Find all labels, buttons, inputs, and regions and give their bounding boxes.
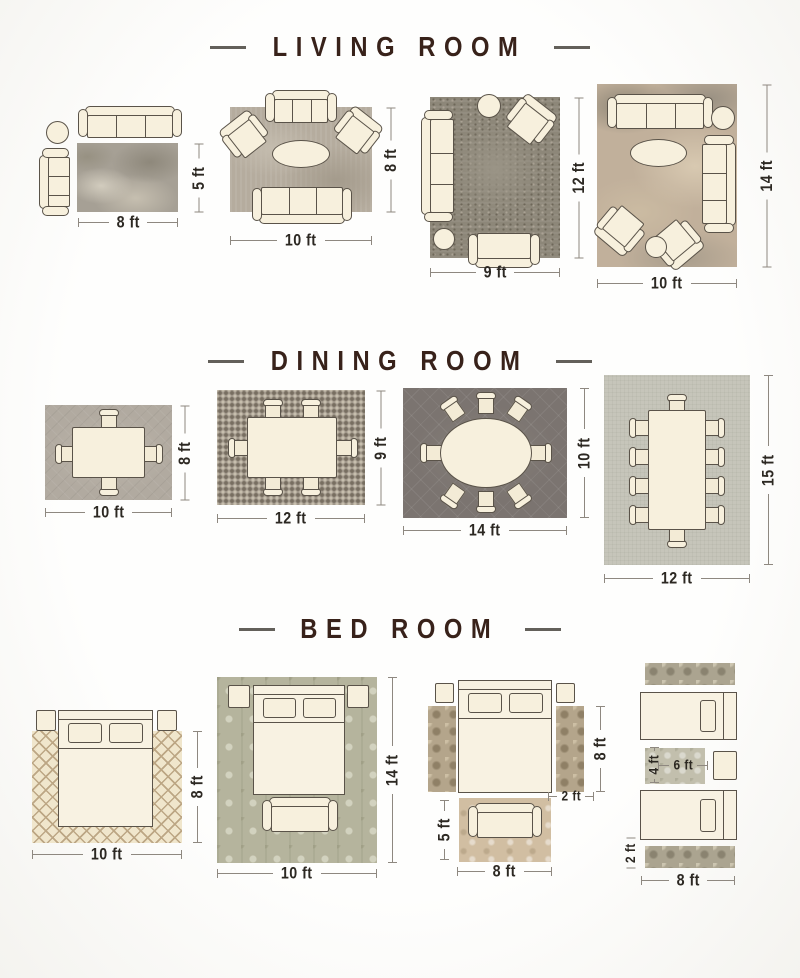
dining-chair — [530, 443, 552, 463]
runner-rug-left — [428, 706, 456, 792]
dim-runner-height: 2 ft — [623, 842, 639, 869]
title-dash-left — [208, 360, 244, 363]
dim-label: 2 ft — [623, 839, 638, 866]
dim-height: 10 ft — [575, 388, 593, 518]
sofa-vertical — [421, 110, 455, 222]
dim-height: 9 ft — [372, 391, 390, 506]
runner-rug-right — [556, 706, 584, 792]
dim-width: 9 ft — [430, 263, 560, 281]
nightstand — [435, 683, 454, 703]
dining-chair — [476, 491, 496, 513]
round-side-table — [711, 106, 735, 130]
title-dash-right — [525, 628, 561, 631]
runner-rug-top — [645, 663, 735, 685]
king-bed — [253, 685, 345, 795]
dining-chair — [703, 418, 725, 438]
queen-bed — [458, 680, 552, 793]
dim-label: 8 ft — [175, 435, 194, 472]
dim-height: 12 ft — [570, 98, 588, 259]
dim-label: 9 ft — [477, 263, 514, 282]
dim-runner-height: 8 ft — [591, 706, 609, 792]
dim-label: 10 ft — [645, 274, 690, 293]
dining-chair — [476, 392, 496, 414]
section-title: DINING ROOM — [271, 345, 529, 377]
dim-label: 5 ft — [189, 160, 208, 197]
title-dash-right — [556, 360, 592, 363]
twin-bed — [640, 692, 737, 740]
dim-width: 10 ft — [32, 845, 182, 863]
dim-height: 14 ft — [383, 677, 401, 863]
dim-height: 8 ft — [188, 731, 206, 843]
dim-label: 8 ft — [670, 871, 707, 890]
dim-rug-width: 6 ft — [658, 757, 708, 773]
runner-rug-bottom — [645, 846, 735, 868]
dim-width: 10 ft — [45, 503, 172, 521]
nightstand — [228, 685, 250, 708]
nightstand — [36, 710, 56, 731]
dim-width: 10 ft — [217, 864, 377, 882]
section-title: LIVING ROOM — [273, 31, 527, 63]
nightstand — [347, 685, 369, 708]
dim-width: 14 ft — [403, 521, 567, 539]
dim-label: 12 ft — [655, 569, 700, 588]
dim-height: 8 ft — [176, 406, 194, 501]
dim-rug-width: 8 ft — [457, 862, 552, 880]
dim-label: 8 ft — [381, 142, 400, 179]
dim-width: 12 ft — [217, 509, 365, 527]
dim-runner-width: 2 ft — [548, 788, 594, 804]
dim-label: 10 ft — [86, 503, 131, 522]
dining-table — [247, 417, 337, 478]
dim-height: 14 ft — [758, 85, 776, 268]
dim-label: 14 ft — [463, 521, 508, 540]
round-side-table — [477, 94, 501, 118]
nightstand — [556, 683, 575, 703]
bedroom-bench — [468, 803, 542, 839]
rug-size-guide-infographic: LIVING ROOM 8 ft 5 ft 10 ft 8 ft — [0, 0, 800, 978]
sofa-three-seat — [265, 90, 337, 124]
dim-label: 12 ft — [269, 509, 314, 528]
living-rug-8x5 — [77, 143, 178, 212]
dining-table — [648, 410, 706, 530]
dining-chair — [336, 438, 358, 458]
dim-label: 14 ft — [383, 748, 402, 793]
dim-height: 8 ft — [382, 108, 400, 213]
dim-label: 6 ft — [669, 757, 696, 772]
twin-bed — [640, 790, 737, 840]
dining-chair — [703, 505, 725, 525]
dim-width: 8 ft — [78, 213, 178, 231]
sofa-vertical — [39, 148, 71, 216]
dim-label: 2 ft — [557, 788, 584, 803]
sofa-three-seat — [607, 94, 713, 130]
oval-coffee-table — [272, 140, 330, 168]
title-dash-left — [239, 628, 275, 631]
title-dash-left — [210, 46, 246, 49]
dim-label: 15 ft — [759, 448, 778, 493]
dim-label: 10 ft — [275, 864, 320, 883]
section-header-living-room: LIVING ROOM — [0, 33, 800, 62]
dim-runner-width: 8 ft — [641, 871, 735, 889]
dim-width: 10 ft — [597, 274, 737, 292]
section-header-dining-room: DINING ROOM — [0, 347, 800, 376]
dim-label: 8 ft — [486, 862, 523, 881]
dining-chair — [703, 447, 725, 467]
dim-label: 8 ft — [110, 213, 147, 232]
round-side-table — [46, 121, 69, 144]
dim-label: 10 ft — [85, 845, 130, 864]
oval-dining-table — [440, 418, 532, 488]
bedroom-bench — [262, 797, 338, 833]
dining-table — [72, 427, 145, 478]
dining-chair — [703, 476, 725, 496]
dim-label: 10 ft — [575, 431, 594, 476]
dim-rug-height: 5 ft — [435, 800, 453, 860]
round-ottoman — [433, 228, 455, 250]
dim-width: 10 ft — [230, 231, 372, 249]
round-ottoman — [645, 236, 667, 258]
sofa-three-seat — [252, 186, 352, 224]
sofa-three-seat — [78, 106, 182, 139]
title-dash-right — [554, 46, 590, 49]
section-header-bed-room: BED ROOM — [0, 615, 800, 644]
dim-label: 10 ft — [279, 231, 324, 250]
nightstand — [713, 751, 737, 780]
dim-height: 15 ft — [759, 375, 777, 565]
queen-bed — [58, 710, 153, 827]
section-title: BED ROOM — [300, 613, 499, 645]
dim-label: 9 ft — [371, 430, 390, 467]
dim-width: 12 ft — [604, 569, 750, 587]
sofa-vertical — [701, 135, 736, 233]
dim-label: 8 ft — [591, 731, 610, 768]
dining-chair — [420, 443, 442, 463]
dim-label: 5 ft — [435, 812, 454, 849]
oval-coffee-table — [630, 139, 687, 167]
dim-height: 5 ft — [190, 144, 208, 213]
dim-label: 14 ft — [757, 154, 776, 199]
dim-label: 8 ft — [188, 769, 207, 806]
dim-label: 12 ft — [569, 156, 588, 201]
nightstand — [157, 710, 177, 731]
